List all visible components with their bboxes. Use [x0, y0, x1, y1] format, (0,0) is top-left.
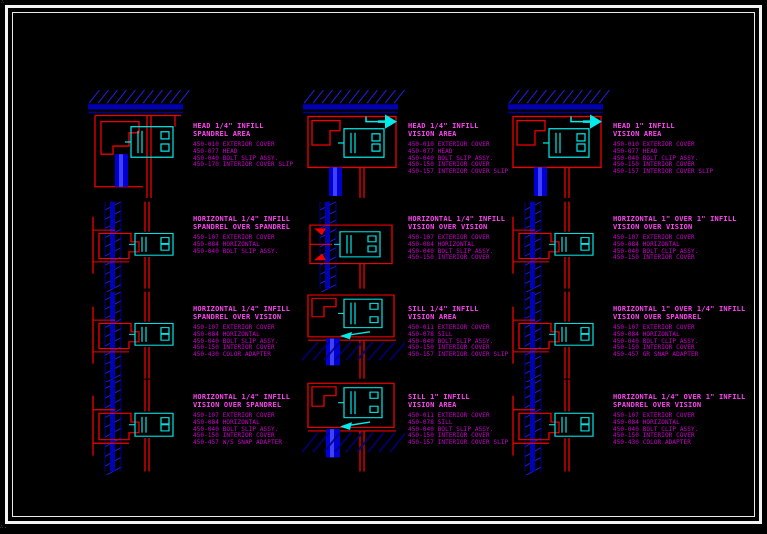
red-profile	[308, 383, 396, 471]
detail-drawing	[505, 88, 610, 200]
glass-unit	[549, 413, 593, 436]
floor-hatch	[302, 433, 405, 452]
detail-drawing	[85, 88, 190, 200]
detail-drawing	[300, 290, 405, 382]
mullion-hatch	[105, 292, 121, 382]
detail-drawing	[300, 378, 405, 475]
screen-artifact-bottom-left: ∴.	[0, 525, 8, 529]
mullion-fill	[115, 154, 128, 187]
mullion-hatch	[105, 202, 121, 292]
glazing-arrow	[340, 422, 370, 430]
detail-title: HORIZONTAL 1" OVER 1" INFILL VISION OVER…	[613, 215, 763, 231]
mullion-hatch	[525, 380, 541, 475]
red-profile	[308, 295, 396, 379]
detail-drawing	[85, 378, 190, 475]
glass-unit	[549, 233, 593, 255]
mullion-fill	[329, 167, 342, 196]
mullion-hatch	[105, 380, 121, 475]
mullion-hatch	[525, 202, 541, 292]
detail-parts: 450-107 EXTERIOR COVER 450-084 HORIZONTA…	[613, 235, 763, 262]
glass-unit	[549, 323, 593, 345]
detail-drawing	[85, 200, 190, 292]
glass-unit	[543, 129, 589, 158]
detail-drawing	[505, 290, 610, 382]
detail-drawing	[300, 200, 405, 292]
mullion-fill	[534, 167, 547, 196]
glass-unit	[338, 129, 384, 158]
glass-unit	[334, 232, 380, 257]
detail-parts: 450-107 EXTERIOR COVER 450-084 HORIZONTA…	[613, 413, 763, 447]
detail-title: HORIZONTAL 1" OVER 1/4" INFILL VISION OV…	[613, 305, 763, 321]
glass-unit	[338, 388, 382, 418]
detail-drawing	[85, 290, 190, 382]
mullion-hatch	[320, 202, 336, 292]
detail-drawing	[505, 200, 610, 292]
floor-hatch	[302, 342, 405, 360]
ceiling-hatch	[508, 90, 609, 112]
screen-artifact-top-left: ∴	[1, 0, 5, 4]
detail-title: HEAD 1" INFILL VISION AREA	[613, 122, 763, 138]
mullion-hatch	[525, 292, 541, 382]
detail-parts: 450-107 EXTERIOR COVER 450-084 HORIZONTA…	[613, 325, 763, 359]
detail-parts: 450-010 EXTERIOR COVER 450-077 HEAD 450-…	[613, 142, 763, 176]
ceiling-hatch	[303, 90, 404, 112]
glass-unit	[338, 299, 382, 327]
detail-drawing	[300, 88, 405, 200]
glass-unit	[125, 127, 173, 158]
detail-title: HORIZONTAL 1/4" OVER 1" INFILL SPANDREL …	[613, 393, 763, 409]
glazing-arrow	[340, 332, 370, 340]
ceiling-hatch	[88, 90, 189, 112]
detail-drawing	[505, 378, 610, 475]
cad-sheet: ∴ ∴. HEAD 1/4" INFILL SPANDREL AREA 450-…	[0, 0, 767, 534]
